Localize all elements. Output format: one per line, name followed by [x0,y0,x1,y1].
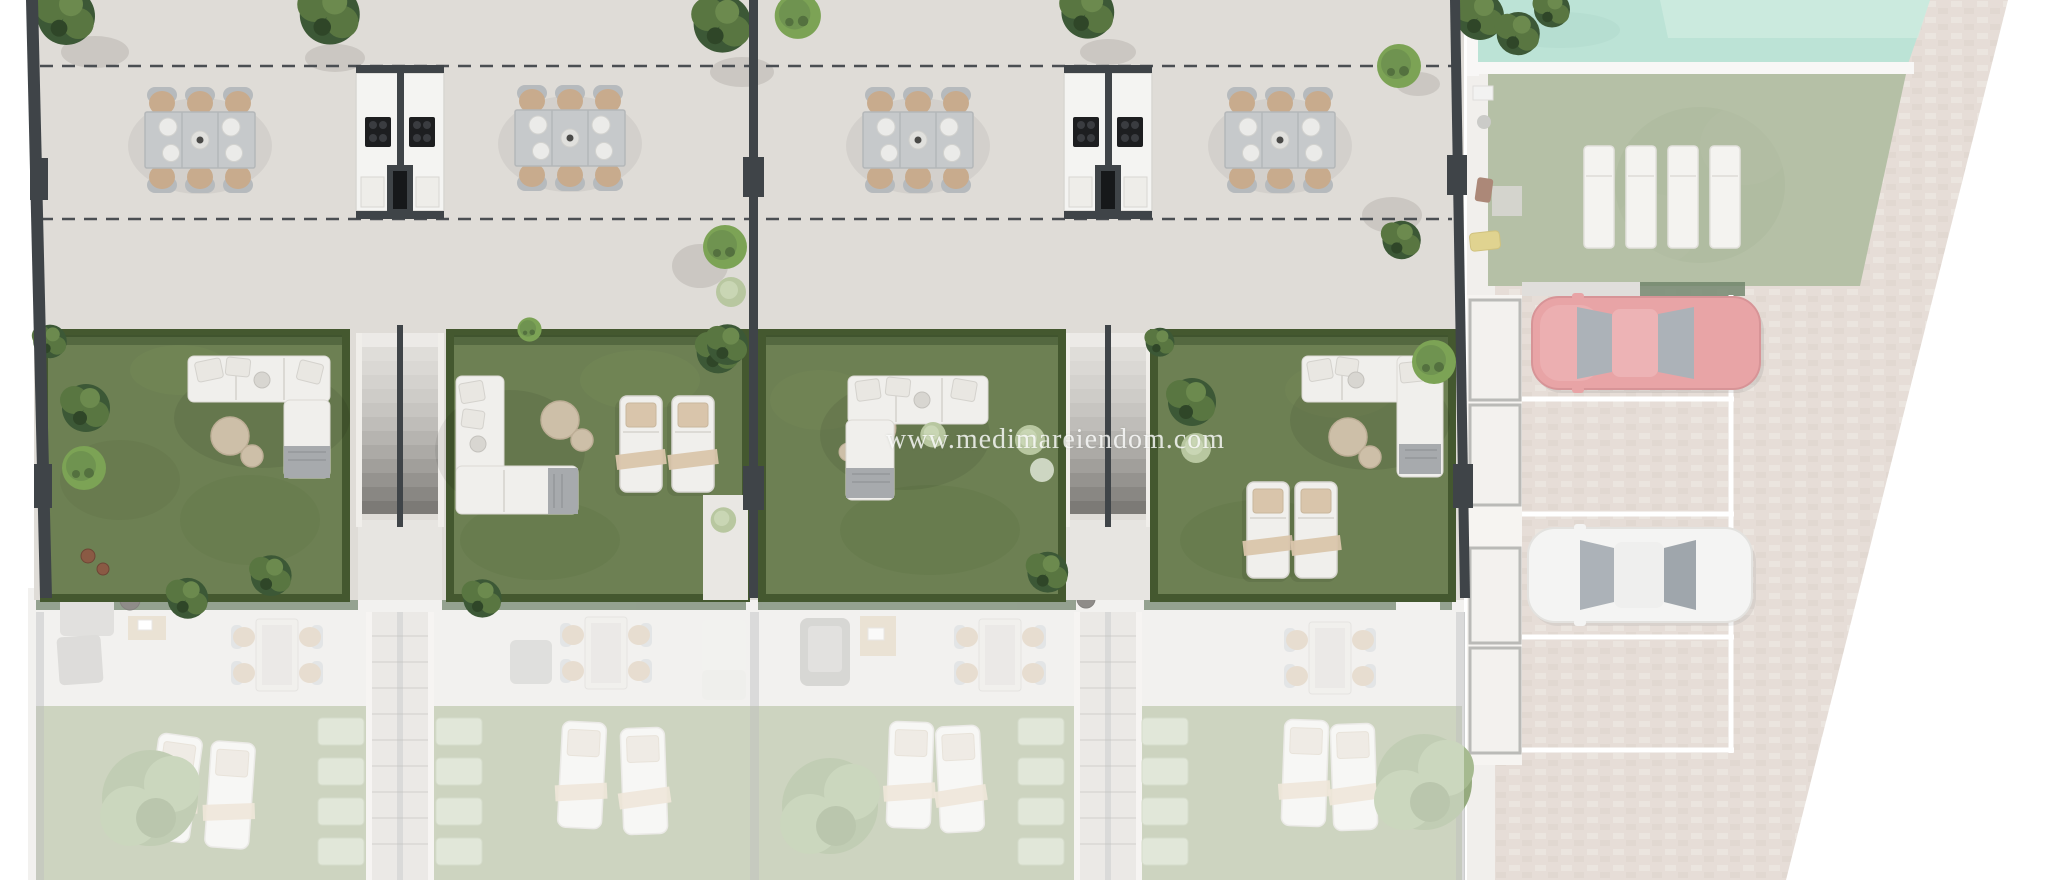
bottom-fade-overlay [26,586,1464,880]
garden-bush [62,446,106,490]
terrace-bush [517,317,541,341]
outdoor-kitchen-module-2 [1064,65,1152,219]
garden-bush [920,422,946,448]
garden-bush [1030,458,1054,482]
terrace-bush [716,277,746,307]
upper-section [26,0,1570,619]
right-section [1462,0,2048,880]
sun-lounger-unit-2 [615,396,667,496]
terrace-tree [703,225,747,269]
dining-set-unit-1 [128,87,272,194]
walkway-bush [711,507,737,533]
garden-unit-2 [435,330,748,617]
site-plan: www.medimareiendom.com [0,0,2048,880]
right-fade-overlay [1462,0,2048,880]
site-plan-rendering [0,0,2048,880]
sofa-blanket [284,446,330,478]
lower-level [26,554,1474,880]
stair-walkway-2 [1066,520,1150,600]
garden-unit-3 [762,333,1068,598]
rust-pot [97,563,109,575]
staircase-2 [1064,325,1152,527]
garden-bush [1181,433,1211,463]
dining-set-unit-3 [846,87,990,194]
sun-lounger-unit-4 [1242,482,1294,582]
sun-lounger-unit-4 [1290,482,1342,582]
dining-set-unit-2 [498,85,642,192]
rust-pot [81,549,95,563]
terrace-tree [1377,44,1421,88]
garden-bush [1015,425,1045,455]
stair-walkway-1 [358,520,442,600]
staircase-1 [356,325,444,527]
outdoor-kitchen-module-1 [356,65,444,219]
sun-lounger-unit-2 [667,396,719,496]
dining-set-unit-4 [1208,87,1352,194]
garden-unit-1 [32,325,350,619]
garden-bush [1412,340,1456,384]
garden-unit-4 [1144,328,1456,598]
